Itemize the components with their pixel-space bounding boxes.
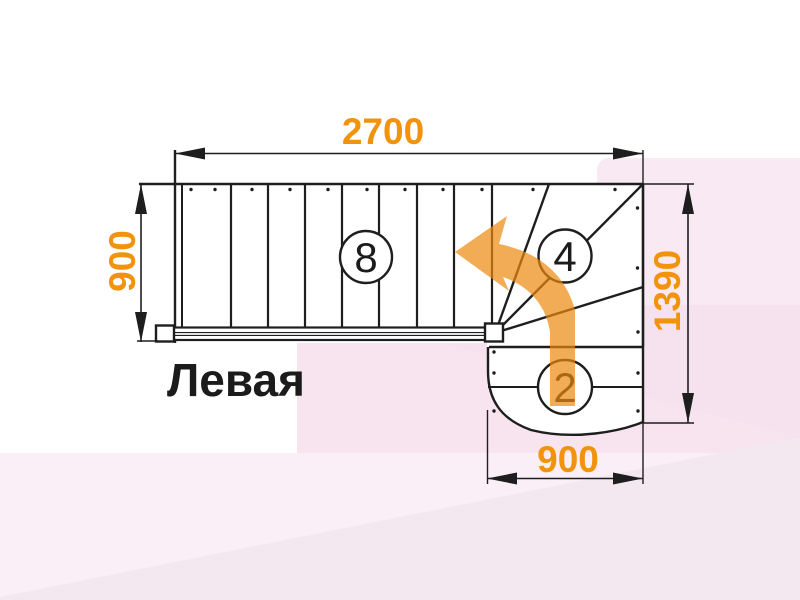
dimension-top-value: 2700	[342, 111, 424, 152]
handrail-post-left	[156, 326, 174, 342]
staircase-plan-canvas: 8 4 2 2700 900 1390 900 Лев	[0, 0, 800, 600]
dimension-bottom-value: 900	[537, 439, 599, 480]
newel-post	[485, 324, 503, 342]
count-upper-flight: 8	[354, 234, 377, 281]
plan-title: Левая	[167, 354, 305, 406]
dimension-left-value: 900	[102, 230, 143, 292]
count-winder-steps: 4	[553, 233, 576, 280]
handrail-bar	[157, 328, 502, 341]
dimension-right-value: 1390	[647, 250, 688, 332]
